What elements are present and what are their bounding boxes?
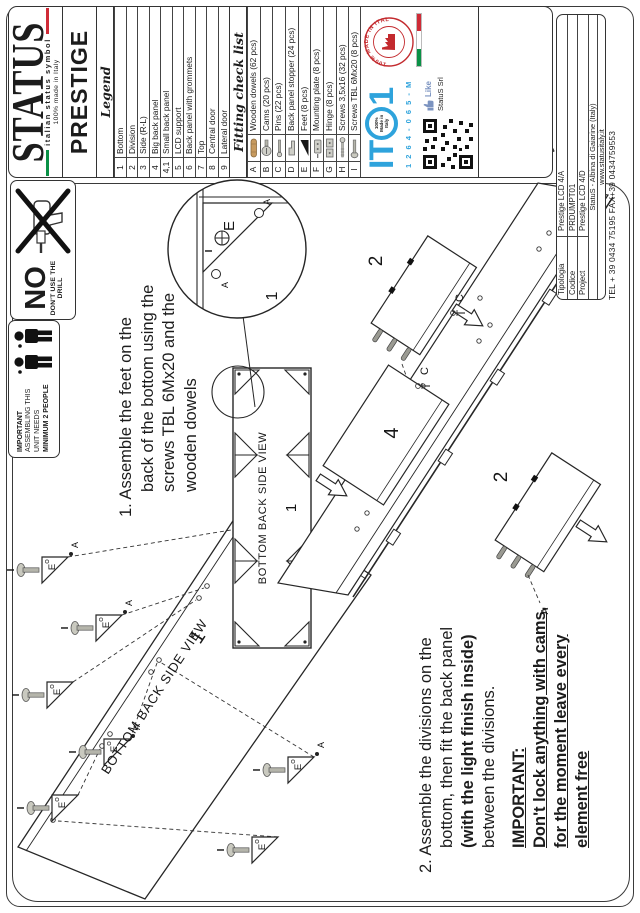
factory-icon <box>382 34 395 50</box>
dowel-label: A <box>124 600 134 606</box>
instruction-sheet-scan: E E E E E E E I I I I I I I A A A A BOTT… <box>0 0 640 913</box>
legend-row: 4Big back panel <box>149 7 161 177</box>
step2-line: (with the light finish inside) <box>458 557 479 873</box>
title-block: STATUS italian status symbol 100% made i… <box>8 6 553 178</box>
made-in-italy-stamp: 100% MADE IN ITALY <box>362 13 416 71</box>
step1-line: screws TBL 6Mx20 and the <box>159 281 181 517</box>
fitting-header: Fitting check list <box>229 7 247 177</box>
brand-name: STATUS <box>9 22 47 163</box>
fitting-row: HScrews 3,5x16 (32 pcs) <box>336 7 349 177</box>
legend-row: 4,1Small back panel <box>160 7 172 177</box>
foot-label: E <box>57 802 68 808</box>
fitting-row: DBack panel stopper (24 pcs) <box>285 7 298 177</box>
legend-header: Legend <box>97 7 114 177</box>
like-label: Like <box>424 81 433 97</box>
screw-label: I <box>252 768 263 771</box>
foot-label: E <box>47 564 58 570</box>
foot-icon <box>71 615 122 641</box>
two-people-warning: IMPORTANT ASSEMBLING THIS UNIT NEEDS MIN… <box>8 320 60 458</box>
screw-label: I <box>68 750 79 753</box>
insert-arrow-icon <box>573 516 611 550</box>
certification-cell: IT 100% Made in Italy 1 1 2 6 4 - 0 6 5 … <box>361 7 479 177</box>
legend-table: 1Bottom 2Division 3Side (R-L) 4Big back … <box>114 7 229 177</box>
two-people-line4: MINIMUM 2 PEOPLE <box>43 376 52 452</box>
foot-label: E <box>52 689 63 695</box>
board-drawing-cell <box>479 7 551 177</box>
panel-1-label: 1 <box>264 291 281 300</box>
step2-instructions: 2. Assemble the divisions on the bottom,… <box>416 557 593 873</box>
step2-line: between the divisions. <box>479 557 500 873</box>
foot-label: E <box>101 622 112 628</box>
screw-label: I <box>6 568 17 571</box>
foot-icon <box>299 134 311 161</box>
two-people-line2: ASSEMBLING THIS <box>25 376 34 452</box>
step2-important: for the moment leave every <box>551 557 572 873</box>
legend-row: 1Bottom <box>114 7 126 177</box>
fitting-row: BCams (20 pcs) <box>260 7 273 177</box>
dowel-label: A <box>262 199 272 205</box>
mounting-plate-icon <box>311 134 323 161</box>
foot-icon <box>17 557 68 583</box>
back-panel-label: 4 <box>381 427 403 438</box>
screw-label: I <box>216 848 227 851</box>
screw-icon <box>337 134 349 161</box>
pin-label: C <box>454 294 466 302</box>
contact-line: TEL + 39 0434 75195 FAX+39 0434759553 <box>607 6 617 300</box>
footer-row: CodicePRDUMPT01 <box>568 15 579 299</box>
qr-code <box>421 117 475 171</box>
foot-label: E <box>293 764 304 770</box>
legend-row: 7Top <box>195 7 207 177</box>
foot-label: E <box>221 221 238 231</box>
tbl-screw-icon <box>349 134 360 161</box>
view-caption: BOTTOM BACK SIDE VIEW <box>257 432 269 584</box>
fitting-table: AWooden dowels (62 pcs) BCams (20 pcs) C… <box>247 7 361 177</box>
company-name: StatuS Srl <box>436 65 445 111</box>
foot-icon <box>22 682 73 708</box>
svg-text:100% MADE IN ITALY: 100% MADE IN ITALY <box>362 17 390 71</box>
fitting-row: EFeet (8 pcs) <box>298 7 311 177</box>
legend-row: 3Side (R-L) <box>137 7 149 177</box>
company-website: www.statusitaly.it <box>598 15 606 299</box>
two-people-line3: UNIT NEEDS <box>34 376 43 452</box>
certification-code: 1 2 6 4 - 0 6 5 - M <box>404 80 413 168</box>
fitting-row: AWooden dowels (62 pcs) <box>247 7 260 177</box>
step1-line: back of the bottom using the <box>138 281 160 517</box>
foot-icon <box>227 837 278 863</box>
division-label: 2 <box>366 256 387 267</box>
screw-label: I <box>11 693 22 696</box>
stopper-icon <box>286 134 298 161</box>
rotated-sheet: E E E E E E E I I I I I I I A A A A BOTT… <box>0 0 640 913</box>
two-people-line1: IMPORTANT <box>17 376 26 452</box>
step2-line: bottom, then fit the back panel <box>437 557 458 873</box>
legend-row: 2Division <box>126 7 138 177</box>
division-label: 2 <box>491 472 512 483</box>
step2-line: 2. Assemble the divisions on the <box>416 557 437 873</box>
like-thumb-icon <box>423 100 434 111</box>
screw-label: I <box>16 806 27 809</box>
wooden-dowel-icon <box>248 134 260 161</box>
step2-important: Don't lock anything with cams, <box>530 557 551 873</box>
screw-label: I <box>60 626 71 629</box>
dowel-icon <box>255 209 264 218</box>
pin-label: C <box>419 367 431 375</box>
hinge-icon <box>324 134 336 161</box>
step1-line: wooden dowels <box>181 281 203 517</box>
ito1-logo: IT 100% Made in Italy 1 <box>364 88 400 169</box>
no-drill-text: DON'T USE THE DRILL <box>50 257 64 319</box>
brand-logo: STATUS italian status symbol 100% made i… <box>9 7 63 177</box>
foot-label: E <box>257 844 268 850</box>
italian-flag-line <box>416 13 422 67</box>
legend-row: 6Back panel with grommets <box>183 7 195 177</box>
panel-1-label: 1 <box>283 504 300 512</box>
no-word: NO <box>22 257 50 319</box>
screw-label: I <box>204 249 215 252</box>
legend-row: 8Central door <box>206 7 218 177</box>
cam-icon <box>261 134 273 161</box>
fitting-row: FMounting plate (8 pcs) <box>310 7 323 177</box>
step1-line: 1. Assemble the feet on the <box>116 281 138 517</box>
fitting-row: GHinge (8 pcs) <box>323 7 336 177</box>
dowel-label: A <box>316 742 326 748</box>
fitting-row: IScrews TBL 6Mx20 (8 pcs) <box>348 7 361 177</box>
product-title: PRESTIGE <box>66 30 93 154</box>
footer-info-box: TipologiaPrestige LCD 4/A CodicePRDUMPT0… <box>556 14 606 300</box>
made-in-italy-text: 100% made in Italy <box>53 7 60 177</box>
no-drill-warning: NO DON'T USE THE DRILL <box>10 180 76 320</box>
dowel-icon <box>212 270 221 279</box>
pin-icon <box>273 134 285 161</box>
dowel-label: A <box>220 282 230 288</box>
dowel-label: A <box>70 542 80 548</box>
step1-instructions: 1. Assemble the feet on the back of the … <box>116 281 202 517</box>
two-people-icon <box>13 322 55 376</box>
step2-important: element free <box>572 557 593 873</box>
fitting-row: CPins (22 pcs) <box>272 7 285 177</box>
legend-row: 9Lateral door <box>218 7 230 177</box>
crossed-drill-icon <box>14 185 72 257</box>
ito1-logo-circle: 100% Made in Italy <box>365 107 398 140</box>
legend-row: 5LCD support <box>172 7 184 177</box>
foot-icon <box>263 757 314 783</box>
step2-important: IMPORTANT: <box>509 557 530 873</box>
footer-row: TipologiaPrestige LCD 4/A <box>557 15 568 299</box>
